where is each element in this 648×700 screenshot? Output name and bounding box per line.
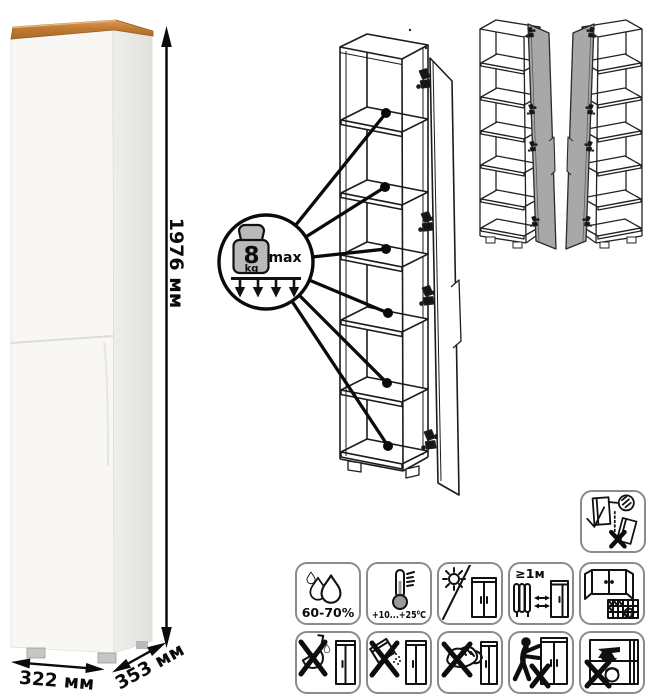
open-cabinet-drawing — [340, 29, 461, 495]
window-glyph — [585, 570, 633, 599]
icon-no-overloading — [579, 631, 645, 694]
icon-no-scrubbing — [437, 631, 503, 694]
radiator-glyph — [514, 584, 530, 617]
temperature-label: +10...+25⁰C — [372, 610, 426, 621]
cabinet-glyph — [336, 641, 355, 684]
radiator-distance-icon: ≥1м — [511, 565, 571, 622]
cabinet-glyph — [472, 578, 496, 617]
icon-humidity: 60-70% — [295, 562, 361, 625]
height-label: 1976 мм — [165, 218, 187, 309]
max-load-unit: kg — [245, 264, 259, 275]
product-render — [11, 20, 153, 663]
cabinet-glyph — [551, 581, 568, 617]
calendar-glyph: 21 — [608, 600, 638, 618]
no-ladle-icon — [298, 634, 358, 691]
open-window-calendar-icon: 21 — [582, 565, 642, 622]
spacing-arrows — [534, 596, 550, 609]
icon-ventilation: 21 — [579, 562, 645, 625]
humidity-label: 60-70% — [302, 605, 355, 620]
no-dragging-icon — [511, 634, 571, 691]
icon-no-sunlight — [437, 562, 503, 625]
icon-no-dragging — [508, 631, 574, 694]
icon-no-abrasive-powder — [366, 631, 432, 694]
icon-heat-distance: ≥1м — [508, 562, 574, 625]
cabinet-glyph — [406, 641, 426, 684]
width-dimension: 322 мм — [9, 657, 105, 695]
cabinet-glyph — [481, 642, 497, 684]
sun-slash-icon — [440, 565, 500, 622]
door-variant-left-hinge — [480, 20, 556, 249]
max-load-qualifier: max — [268, 250, 301, 266]
distance-label: ≥1м — [515, 566, 544, 581]
kettlebell-glyph — [606, 668, 619, 681]
shelves — [341, 107, 428, 469]
powder-dots — [393, 653, 401, 665]
door-variant-right-hinge — [566, 20, 642, 249]
cabinet-side-panel — [113, 30, 152, 653]
water-drops-icon: 60-70% — [298, 565, 358, 622]
cabinet-door-open — [430, 58, 461, 495]
no-abrasive-sponge-icon — [440, 634, 500, 691]
arrowhead-up — [161, 26, 172, 47]
cabinet-glyph — [541, 638, 567, 684]
calendar-day-label: 21 — [625, 610, 633, 617]
thermometer-icon: +10...+25⁰C — [369, 565, 429, 622]
icon-no-liquids — [295, 631, 361, 694]
no-powder-icon — [369, 634, 429, 691]
width-label: 322 мм — [18, 668, 95, 695]
icon-wall-anchor — [580, 490, 646, 553]
no-overload-icon — [582, 634, 642, 691]
variant-door-panel — [526, 24, 556, 249]
anchor-to-wall-icon — [584, 494, 642, 549]
product-sheet: 1976 мм 322 мм 353 мм — [0, 0, 648, 700]
weight-icon: 8 kg — [234, 225, 269, 275]
height-dimension: 1976 мм — [161, 26, 187, 648]
icon-temperature: +10...+25⁰C — [366, 562, 432, 625]
